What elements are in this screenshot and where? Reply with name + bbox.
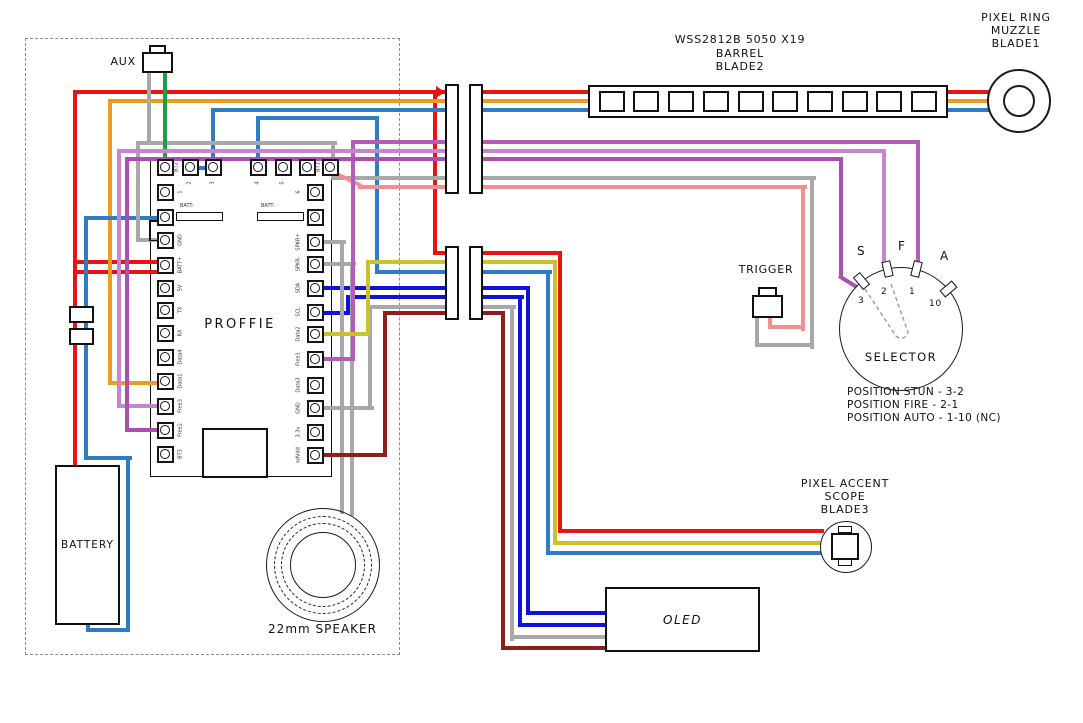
scope-blade3-data-wire (256, 116, 379, 120)
board-pad-right-3.3v (307, 424, 324, 441)
batt-neg-tab-right (257, 212, 304, 221)
scope-pixel-chip (831, 533, 859, 560)
battery-negative-wire (126, 456, 130, 632)
board-pad-top-5 (275, 159, 292, 176)
board-pad-top-BT1 (322, 159, 339, 176)
selector-free1-wire (351, 140, 355, 361)
scope-title-line: BLADE3 (795, 503, 895, 516)
muzzle-ring-title-line: MUZZLE (966, 24, 1066, 37)
board-pad-right-label-Free1: Free1 (297, 352, 302, 366)
board-title: PROFFIE (190, 317, 290, 332)
board-pad-left-label-BT3: BT3 (179, 449, 184, 459)
board-pad-left-Free3 (157, 398, 174, 415)
board-pad-top-label-5: 5 (281, 181, 286, 184)
battery-positive-wire (558, 251, 562, 533)
oled-sda-wire (312, 286, 530, 290)
battery-positive-wire (73, 90, 77, 467)
selector-free3-wire (117, 149, 886, 153)
selector-position-notes: POSITION STUN - 3-2POSITION FIRE - 2-1PO… (847, 386, 1082, 426)
trigger-ground-wire (755, 313, 759, 347)
scope-blade3-data-wire (546, 270, 550, 555)
board-pad-right-label-SDA: SDA (297, 283, 302, 293)
board-pad-right-label-3.3v: 3.3v (297, 427, 302, 438)
selector-free3-wire (882, 149, 886, 268)
board-pad-right-Free1 (307, 351, 324, 368)
connector2-pin-left (445, 246, 459, 320)
board-pad-left-TX (157, 302, 174, 319)
board-pad-left-GND (157, 232, 174, 249)
oled-display: OLED (605, 587, 760, 652)
barrel-strip-title-line: WSS2812B 5050 X19 (640, 33, 840, 47)
battery-negative-wire (86, 628, 130, 632)
selector-pin-number-1: 1 (909, 287, 916, 297)
scope-data2-wire (553, 541, 822, 545)
board-pad-right-Data2 (307, 326, 324, 343)
speaker-cone (290, 532, 356, 598)
connector1-pin-right (469, 84, 483, 194)
selector-position-note-line: POSITION AUTO - 1-10 (NC) (847, 412, 1082, 425)
barrel-pixel-1 (599, 91, 625, 112)
board-pad-left-RX (157, 325, 174, 342)
barrel-pixel-8 (842, 91, 868, 112)
aux-ground-wire (147, 71, 151, 145)
muzzle-ring-title-line: BLADE1 (966, 37, 1066, 50)
board-pad-left-label-BATT+: BATT+ (179, 257, 184, 274)
barrel-strip-title-line: BLADE2 (640, 60, 840, 74)
scope-data2-wire (366, 260, 370, 336)
barrel-strip-title: WSS2812B 5050 X19BARRELBLADE2 (640, 33, 840, 74)
barrel-pixel-strip (588, 85, 948, 118)
selector-free1-wire (916, 140, 920, 272)
battery-positive-wire (433, 90, 437, 255)
muzzle-ring-inner (1003, 85, 1035, 117)
selector-pin-number-10: 10 (929, 299, 942, 309)
battery-label: BATTERY (61, 539, 114, 551)
board-pad-right-sdVdd (307, 447, 324, 464)
board-pad-right-label-GND: GND (297, 402, 302, 413)
wire-branch-arrow (436, 86, 445, 98)
board-pad-left-BATT+ (157, 257, 174, 274)
barrel-pixel-6 (772, 91, 798, 112)
speaker-label: 22mm SPEAKER (245, 622, 400, 636)
board-pad-left-label-RX: RX (179, 330, 184, 337)
board-pad-right-label-SPKR-: SPKR- (297, 257, 302, 272)
board-pad-right-SDA (307, 280, 324, 297)
barrel-pixel-9 (876, 91, 902, 112)
board-pad-left-label-1: 1 (179, 190, 184, 193)
board-pad-left-label-GND: GND (179, 234, 184, 245)
oled-sda-wire (526, 611, 609, 615)
selector-position-note-line: POSITION FIRE - 2-1 (847, 399, 1082, 412)
scope-blade3-data-wire (546, 551, 824, 555)
board-pad-left-5V (157, 280, 174, 297)
oled-ground-wire (510, 305, 514, 641)
batt-bracket-bottom (149, 240, 157, 242)
barrel-pixel-7 (807, 91, 833, 112)
batt-bracket-side (149, 220, 151, 241)
batt-neg-tab-right-label: BATT- (261, 204, 275, 209)
board-pad-right-label-Data2: Data2 (297, 326, 302, 341)
scope-pixel-pad-top (838, 526, 852, 533)
board-pad-left-Data4 (157, 349, 174, 366)
barrel-blade2-data-wire (211, 108, 215, 164)
selector-mode-letter-F: F (898, 239, 906, 253)
oled-ground-wire (368, 305, 516, 309)
scope-data2-wire (553, 260, 557, 545)
oled-power-wire (501, 646, 609, 650)
aux-label: AUX (96, 55, 136, 68)
selector-mode-letter-S: S (857, 244, 865, 258)
selector-free3-wire (117, 149, 121, 408)
board-pad-left-BT3 (157, 446, 174, 463)
board-pad-left-label-TX: TX (179, 307, 184, 313)
board-pad-top-2 (182, 159, 199, 176)
battery-lead-connector-2 (69, 328, 94, 345)
trigger-bt1-wire (358, 185, 807, 189)
battery-positive-wire (558, 529, 824, 533)
aux-switch-body (142, 52, 173, 73)
board-pad-right-Data3 (307, 377, 324, 394)
board-pad-right-label-SPKR+: SPKR+ (297, 233, 302, 250)
board-pad-right-label-Data3: Data3 (297, 377, 302, 392)
board-pad-top-4 (250, 159, 267, 176)
board-pad-right-GND (307, 400, 324, 417)
selector-free2-wire (125, 157, 843, 161)
barrel-pixel-4 (703, 91, 729, 112)
oled-ground-wire (510, 635, 609, 639)
oled-scl-wire (518, 623, 609, 627)
barrel-pixel-5 (738, 91, 764, 112)
selector-free2-wire (125, 157, 129, 432)
board-pad-top-label-3: 3 (211, 181, 216, 184)
board-pad-top-label-BT2: BT2 (175, 162, 180, 172)
board-pad-left-label-Data4: Data4 (179, 349, 184, 364)
oled-power-wire (501, 311, 505, 650)
barrel-data1-wire (108, 99, 112, 385)
board-pad-left-label-Free2: Free2 (179, 423, 184, 437)
selector-free1-wire (351, 140, 920, 144)
selector-position-note-line: POSITION STUN - 3-2 (847, 386, 1082, 399)
scope-title-line: PIXEL ACCENT (795, 477, 895, 490)
board-pad-left-label-Free3: Free3 (179, 399, 184, 413)
board-pad-right-6 (307, 184, 324, 201)
trigger-ground-wire (331, 176, 816, 180)
selector-pin-number-2: 2 (881, 287, 888, 297)
oled-label: OLED (663, 613, 702, 627)
oled-power-wire (383, 311, 387, 457)
board-pad-top-3 (205, 159, 222, 176)
scope-title: PIXEL ACCENTSCOPEBLADE3 (795, 477, 895, 516)
board-pad-right-label-sdVdd: sdVdd (297, 447, 302, 463)
board-pad-left-Free2 (157, 422, 174, 439)
board-pad-left-label-Data1: Data1 (179, 373, 184, 388)
oled-sda-wire (526, 286, 530, 615)
usb-port (202, 428, 268, 478)
oled-scl-wire (518, 295, 522, 627)
board-pad-right-SCL (307, 304, 324, 321)
trigger-label: TRIGGER (730, 263, 802, 276)
selector-label: SELECTOR (851, 350, 951, 364)
wiring-diagram: AUX BATTERY PROFFIE 22mm SPEAKER WSS2812… (0, 0, 1083, 723)
trigger-bt1-wire (801, 185, 805, 331)
board-pad-right-SPKR+ (307, 234, 324, 251)
oled-scl-wire (346, 295, 524, 299)
board-pad-left-Data1 (157, 373, 174, 390)
muzzle-ring-title-line: PIXEL RING (966, 11, 1066, 24)
trigger-ground-wire (810, 176, 814, 349)
connector2-pin-right (469, 246, 483, 320)
selector-mode-letter-A: A (940, 249, 949, 263)
connector1-pin-left (445, 84, 459, 194)
selector-pin-number-3: 3 (858, 296, 865, 306)
barrel-strip-title-line: BARREL (640, 47, 840, 61)
barrel-pixel-3 (668, 91, 694, 112)
speaker-positive-wire (340, 240, 344, 514)
trigger-bt1-wire (768, 325, 805, 329)
scope-pixel-pad-bottom (838, 559, 852, 566)
board-pad-left-label-5V: 5V (179, 285, 184, 292)
board-pad-top-label-2: 2 (188, 181, 193, 184)
board-pad-right-label-SCL: SCL (297, 307, 302, 316)
board-pad-right-label-6: 6 (297, 190, 302, 193)
battery-negative-wire (84, 456, 132, 460)
trigger-ground-wire (755, 343, 814, 347)
board-pad-right-SPKR- (307, 256, 324, 273)
battery: BATTERY (55, 465, 120, 625)
board-pad-top-label-4: 4 (256, 181, 261, 184)
board-pad-top-5 (299, 159, 316, 176)
board-pad-left-1 (157, 184, 174, 201)
muzzle-ring-title: PIXEL RINGMUZZLEBLADE1 (966, 11, 1066, 50)
board-pad-left-BATT- (157, 209, 174, 226)
barrel-pixel-10 (911, 91, 937, 112)
battery-lead-connector-1 (69, 306, 94, 323)
board-pad-right-BATT- (307, 209, 324, 226)
batt-neg-tab-left-label: BATT- (180, 204, 194, 209)
selector-free2-wire (839, 157, 843, 276)
board-pad-top-BT2 (157, 159, 174, 176)
board-pad-top-label-BT1: BT1 (317, 162, 322, 172)
barrel-pixel-2 (633, 91, 659, 112)
scope-title-line: SCOPE (795, 490, 895, 503)
trigger-switch-body (752, 295, 783, 318)
batt-neg-tab-left (176, 212, 223, 221)
oled-power-wire (383, 311, 505, 315)
